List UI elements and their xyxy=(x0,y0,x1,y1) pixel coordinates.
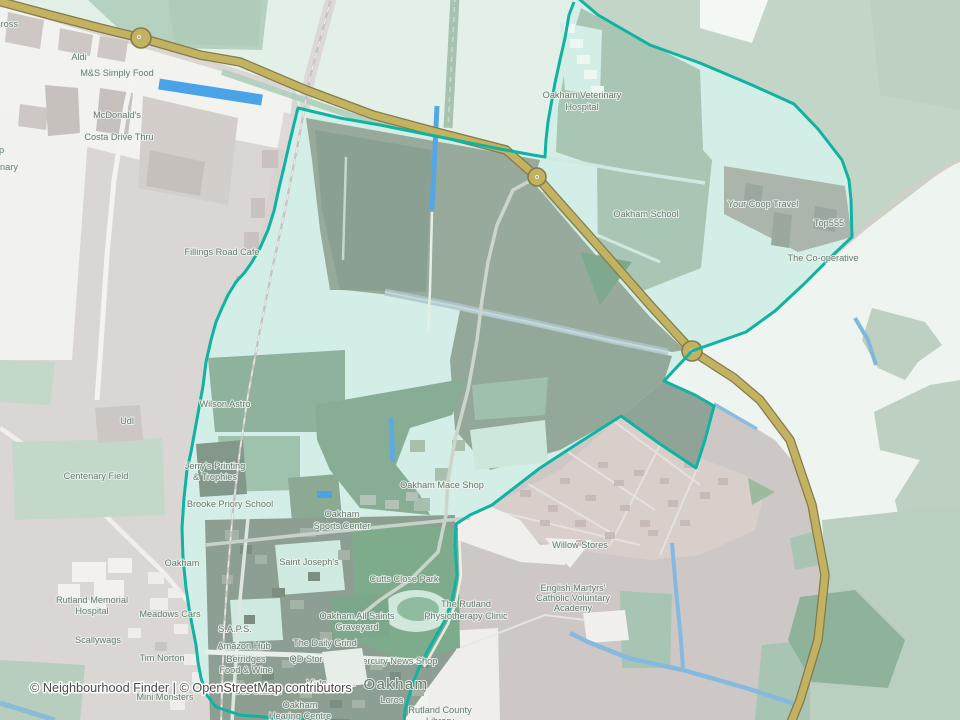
svg-text:Oakham: Oakham xyxy=(325,509,360,519)
svg-text:Top555: Top555 xyxy=(814,218,844,228)
svg-text:Tim Norton: Tim Norton xyxy=(139,653,184,663)
svg-text:The Co-operative: The Co-operative xyxy=(788,253,859,263)
svg-text:Scallywags: Scallywags xyxy=(75,635,121,645)
svg-text:Oakham All Saints: Oakham All Saints xyxy=(319,611,394,621)
svg-text:M&S Simply Food: M&S Simply Food xyxy=(80,68,154,78)
svg-text:Rutland Memorial: Rutland Memorial xyxy=(56,595,128,605)
svg-text:Willow Stores: Willow Stores xyxy=(552,540,608,550)
svg-text:Berridges: Berridges xyxy=(226,654,266,664)
svg-text:English Martyrs': English Martyrs' xyxy=(540,583,605,593)
svg-text:Physiotherapy Clinic: Physiotherapy Clinic xyxy=(424,611,508,621)
svg-text:Jerry's Printing: Jerry's Printing xyxy=(185,461,245,471)
svg-text:Food & Wine: Food & Wine xyxy=(219,665,272,675)
svg-text:Oakham: Oakham xyxy=(283,700,318,710)
svg-text:p: p xyxy=(0,145,4,155)
svg-text:Centenary Field: Centenary Field xyxy=(64,471,129,481)
svg-text:cross: cross xyxy=(0,19,18,29)
svg-text:Fillings Road Cafe: Fillings Road Cafe xyxy=(184,247,259,257)
svg-text:inary: inary xyxy=(0,162,18,172)
svg-text:Brooke Priory School: Brooke Priory School xyxy=(187,499,273,509)
svg-text:Wilson Astro: Wilson Astro xyxy=(199,399,250,409)
svg-text:Oakham: Oakham xyxy=(165,558,200,568)
svg-text:Mercury News Shop: Mercury News Shop xyxy=(355,656,438,666)
svg-text:Catholic Voluntary: Catholic Voluntary xyxy=(536,593,610,603)
svg-text:Rutland County: Rutland County xyxy=(408,705,472,715)
svg-text:Oakham Mace Shop: Oakham Mace Shop xyxy=(400,480,484,490)
svg-text:Costa Drive Thru: Costa Drive Thru xyxy=(84,132,153,142)
svg-text:McDonald's: McDonald's xyxy=(93,110,141,120)
svg-text:Oakham School: Oakham School xyxy=(613,209,678,219)
svg-text:Hospital: Hospital xyxy=(75,606,108,616)
svg-text:Cutts Close Park: Cutts Close Park xyxy=(370,574,439,584)
svg-text:Hearing Centre: Hearing Centre xyxy=(269,711,331,720)
svg-text:Academy: Academy xyxy=(554,603,593,613)
svg-text:Udl: Udl xyxy=(120,416,134,426)
svg-text:Oakham: Oakham xyxy=(363,676,428,693)
svg-text:Amazon Hub: Amazon Hub xyxy=(217,641,270,651)
svg-text:The Rutland: The Rutland xyxy=(441,599,491,609)
svg-text:Your Coop Travel: Your Coop Travel xyxy=(728,199,799,209)
svg-text:Sports Center: Sports Center xyxy=(314,521,371,531)
svg-text:Hospital: Hospital xyxy=(565,102,598,112)
svg-text:S.A.P.S.: S.A.P.S. xyxy=(218,624,252,634)
svg-text:& Trophies: & Trophies xyxy=(193,472,237,482)
svg-text:Graveyard: Graveyard xyxy=(336,622,379,632)
svg-text:Loros: Loros xyxy=(381,695,404,705)
svg-text:© Neighbourhood Finder | © Ope: © Neighbourhood Finder | © OpenStreetMap… xyxy=(30,681,352,695)
svg-text:Oakham Veterinary: Oakham Veterinary xyxy=(543,90,622,100)
svg-text:Saint Joseph's: Saint Joseph's xyxy=(279,557,339,567)
svg-text:Library: Library xyxy=(426,716,454,720)
svg-text:The Daily Grind: The Daily Grind xyxy=(293,638,357,648)
svg-text:Aldi: Aldi xyxy=(71,52,86,62)
svg-text:Meadows Cars: Meadows Cars xyxy=(139,609,201,619)
